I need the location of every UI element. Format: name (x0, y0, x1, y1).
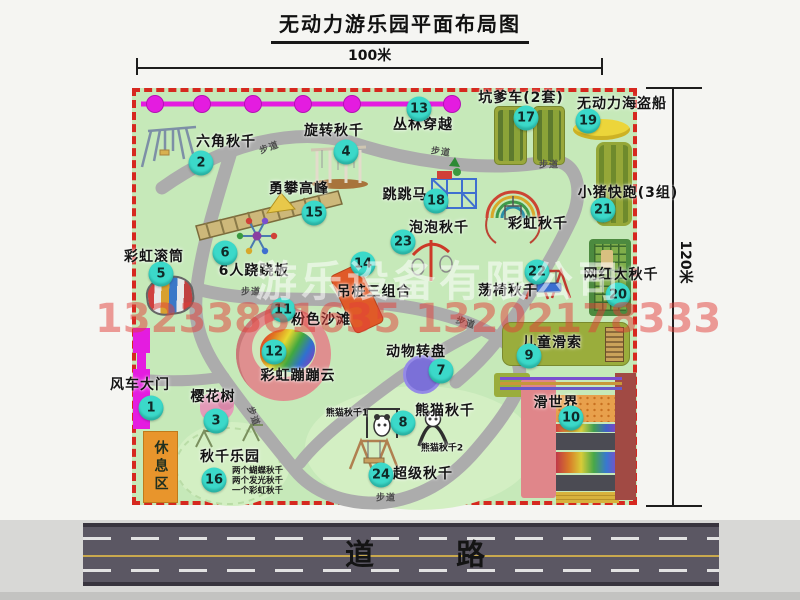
badge-8: 8 (391, 411, 416, 436)
dimension-line-top (137, 67, 602, 69)
badge-7: 7 (429, 359, 454, 384)
windmill-gate-middle (137, 353, 146, 369)
dimension-tick-right-top (646, 87, 702, 89)
zipline-cable-2 (500, 382, 622, 385)
label-cherry-tree: 樱花树 (191, 386, 236, 406)
badge-16: 16 (202, 468, 227, 493)
trail-label-6: 步道 (376, 491, 396, 504)
zipline-cable-1 (500, 377, 622, 380)
badge-10: 10 (559, 406, 584, 431)
dimension-tick-top-right (601, 58, 603, 75)
label-windmill-gate: 风车大门 (110, 374, 170, 394)
badge-1: 1 (139, 396, 164, 421)
label-piggy-run: 小猪快跑(3组) (578, 182, 679, 202)
slide-world-maroon-tower (615, 373, 636, 500)
slide-world-strip-dark-2 (556, 475, 619, 491)
label-panda-swing-1: 熊猫秋千1 (326, 406, 368, 419)
label-super-swing: 超级秋千 (393, 463, 453, 483)
slide-world-strip-yellow (556, 492, 619, 503)
swing-park-note-2: 两个发光秋千 (232, 476, 283, 486)
badge-13: 13 (407, 97, 432, 122)
label-jumping-horse: 跳跳马 (383, 184, 428, 204)
swing-park-note-1: 两个蝴蝶秋千 (232, 466, 283, 476)
kengdie-car-stripes-2 (537, 110, 561, 161)
slide-world-strip-dark-1 (556, 433, 619, 450)
badge-21: 21 (591, 198, 616, 223)
badge-2: 2 (189, 151, 214, 176)
label-panda-swing-2: 熊猫秋千2 (421, 441, 463, 454)
trail-label-3: 步道 (539, 158, 559, 171)
rest-area: 休息区 (143, 431, 178, 503)
badge-12: 12 (262, 340, 287, 365)
layout-poster: 无动力游乐园平面布局图 100米 120米 (0, 0, 800, 600)
dimension-tick-right-bottom (646, 505, 702, 507)
slide-world-strip-rainbow-2 (556, 452, 619, 473)
label-rainbow-swing: 彩虹秋千 (508, 213, 568, 233)
dimension-label-right: 120米 (676, 240, 696, 283)
badge-3: 3 (204, 409, 229, 434)
dimension-label-top: 100米 (348, 45, 391, 65)
page-title: 无动力游乐园平面布局图 (271, 8, 529, 44)
badge-15: 15 (302, 201, 327, 226)
watermark-phones: 13233861635 13202178333 (95, 296, 721, 342)
badge-5: 5 (149, 262, 174, 287)
rest-area-label: 休息区 (151, 440, 171, 494)
label-panda-swing: 熊猫秋千 (415, 400, 475, 420)
badge-18: 18 (424, 189, 449, 214)
label-hexagon-swing: 六角秋千 (196, 131, 256, 151)
label-kengdie-car: 坑爹车(2套) (478, 87, 564, 107)
badge-9: 9 (517, 344, 542, 369)
label-rainbow-bounce-cloud: 彩虹蹦蹦云 (261, 365, 336, 385)
label-rotating-swing: 旋转秋千 (304, 120, 364, 140)
badge-4: 4 (334, 140, 359, 165)
trail-label-2: 步道 (430, 143, 452, 159)
dimension-tick-top-left (136, 58, 138, 75)
swing-park-notes: 两个蝴蝶秋千 两个发光秋千 一个彩虹秋千 (232, 466, 283, 496)
badge-24: 24 (369, 463, 394, 488)
label-bubble-swing: 泡泡秋千 (409, 217, 469, 237)
label-peak-climbing: 勇攀高峰 (269, 178, 329, 198)
badge-19: 19 (576, 109, 601, 134)
label-swing-park: 秋千乐园 (200, 446, 260, 466)
badge-17: 17 (514, 106, 539, 131)
swing-park-note-3: 一个彩虹秋千 (232, 486, 283, 496)
badge-6: 6 (213, 241, 238, 266)
zipline-cable-3 (500, 387, 622, 390)
